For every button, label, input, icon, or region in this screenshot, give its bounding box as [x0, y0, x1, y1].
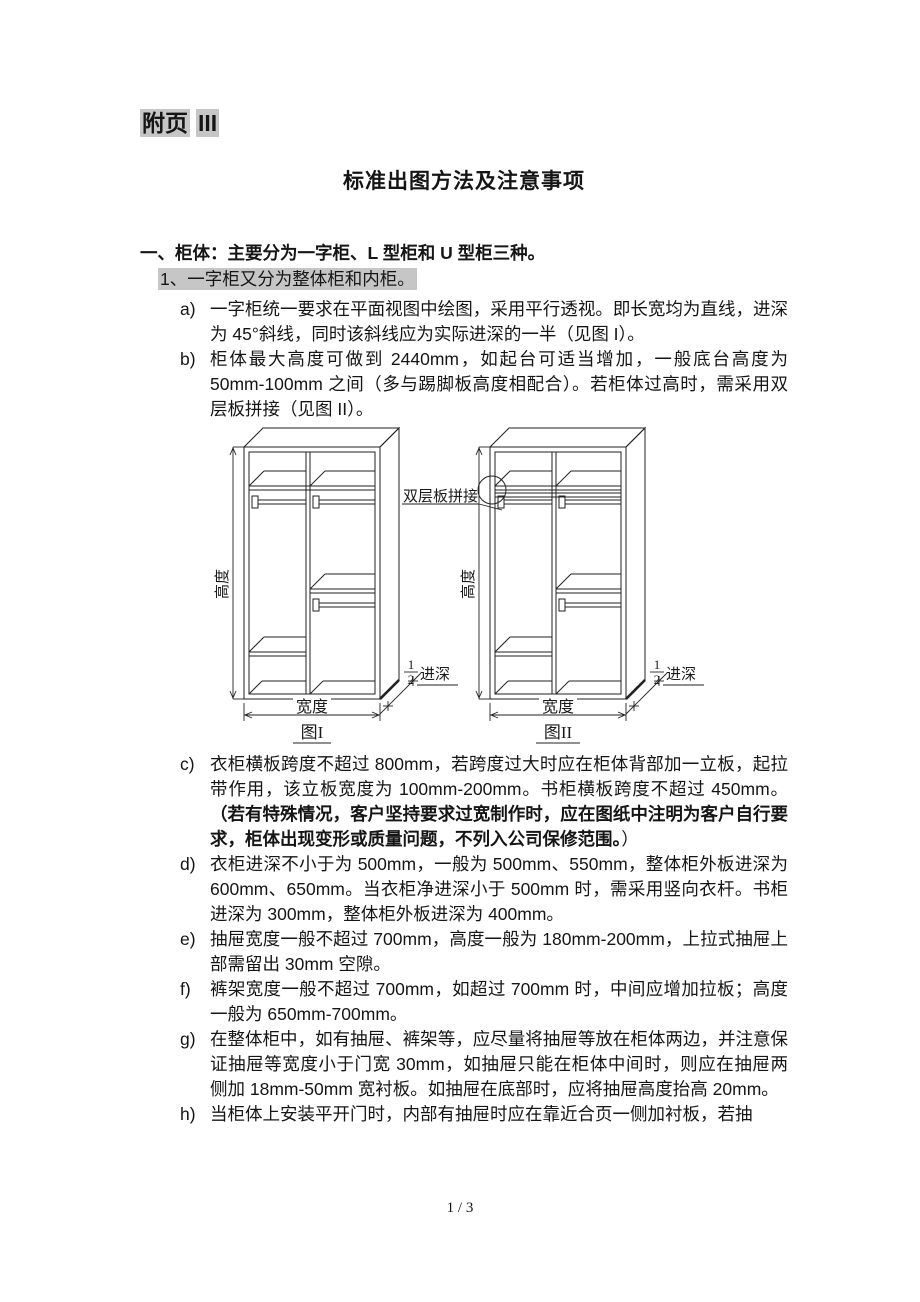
- item-text: 衣柜横板跨度不超过 800mm，若跨度过大时应在柜体背部加一立板，起拉带作用，该…: [210, 754, 788, 799]
- item-marker: g): [180, 1027, 196, 1052]
- cabinet-figure: 高度 宽度: [140, 422, 788, 752]
- item-text: 衣柜进深不小于为 500mm，一般为 500mm、550mm，整体柜外板进深为 …: [210, 854, 788, 924]
- document-page: 附页III 标准出图方法及注意事项 一、柜体：主要分为一字柜、L 型柜和 U 型…: [0, 0, 920, 1302]
- item-marker: h): [180, 1102, 196, 1127]
- cabinet-figure-svg: 高度 宽度: [140, 422, 788, 752]
- list-item-b: b) 柜体最大高度可做到 2440mm，如起台可适当增加，一般底台高度为 50m…: [140, 347, 788, 422]
- spec-list: a) 一字柜统一要求在平面视图中绘图，采用平行透视。即长宽均为直线，进深为 45…: [140, 297, 788, 1127]
- item-text: 当柜体上安装平开门时，内部有抽屉时应在靠近合页一侧加衬板，若抽: [210, 1104, 753, 1124]
- list-item-f: f) 裤架宽度一般不超过 700mm，如超过 700mm 时，中间应增加拉板；高…: [140, 977, 788, 1027]
- item-text: 一字柜统一要求在平面视图中绘图，采用平行透视。即长宽均为直线，进深为 45°斜线…: [210, 299, 788, 344]
- page-title: 标准出图方法及注意事项: [140, 168, 788, 196]
- item-marker: d): [180, 852, 196, 877]
- document-content: 附页III 标准出图方法及注意事项 一、柜体：主要分为一字柜、L 型柜和 U 型…: [140, 108, 788, 1127]
- appendix-prefix: 附页: [140, 109, 190, 137]
- item-text: 裤架宽度一般不超过 700mm，如超过 700mm 时，中间应增加拉板；高度一般…: [210, 979, 788, 1024]
- double-panel-joint-label: 双层板拼接: [403, 487, 478, 505]
- item-marker: e): [180, 927, 196, 952]
- figure2-caption: 图II: [544, 723, 573, 742]
- list-item-g: g) 在整体柜中，如有抽屉、裤架等，应尽量将抽屉等放在柜体两边，并注意保证抽屉等…: [140, 1027, 788, 1102]
- list-item-e: e) 抽屉宽度一般不超过 700mm，高度一般为 180mm-200mm，上拉式…: [140, 927, 788, 977]
- item-marker: a): [180, 297, 196, 322]
- list-item-d: d) 衣柜进深不小于为 500mm，一般为 500mm、550mm，整体柜外板进…: [140, 852, 788, 927]
- page-number: 1 / 3: [0, 1200, 920, 1217]
- figure1-caption: 图I: [301, 723, 324, 742]
- item-marker: c): [180, 752, 195, 777]
- item-marker: f): [180, 977, 191, 1002]
- section-subheading: 1、一字柜又分为整体柜和内柜。: [158, 266, 788, 292]
- wardrobe-figure-2: [460, 428, 704, 721]
- item-text: 在整体柜中，如有抽屉、裤架等，应尽量将抽屉等放在柜体两边，并注意保证抽屉等宽度小…: [210, 1029, 788, 1099]
- item-text: 柜体最大高度可做到 2440mm，如起台可适当增加，一般底台高度为 50mm-1…: [210, 349, 788, 419]
- list-item-h: h) 当柜体上安装平开门时，内部有抽屉时应在靠近合页一侧加衬板，若抽: [140, 1102, 788, 1127]
- list-item-a: a) 一字柜统一要求在平面视图中绘图，采用平行透视。即长宽均为直线，进深为 45…: [140, 297, 788, 347]
- item-marker: b): [180, 347, 196, 372]
- section-subheading-text: 1、一字柜又分为整体柜和内柜。: [158, 268, 417, 290]
- appendix-number: III: [196, 109, 219, 137]
- section-heading: 一、柜体：主要分为一字柜、L 型柜和 U 型柜三种。: [140, 240, 788, 266]
- list-item-c: c) 衣柜横板跨度不超过 800mm，若跨度过大时应在柜体背部加一立板，起拉带作…: [140, 752, 788, 852]
- item-text: 抽屉宽度一般不超过 700mm，高度一般为 180mm-200mm，上拉式抽屉上…: [210, 929, 788, 974]
- appendix-label: 附页III: [140, 108, 788, 138]
- item-text-close: ）: [621, 829, 639, 849]
- item-text-bold: （若有特殊情况，客户坚持要求过宽制作时，应在图纸中注明为客户自行要求，柜体出现变…: [210, 804, 788, 849]
- wardrobe-figure-1: [214, 428, 458, 721]
